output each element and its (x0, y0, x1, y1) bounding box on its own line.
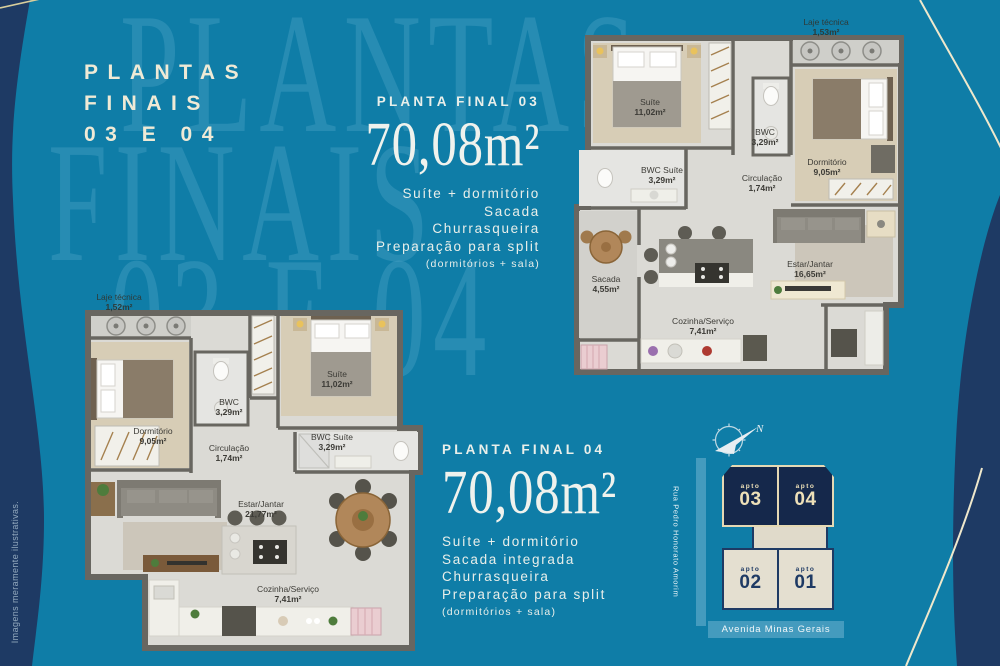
plan03-sofa (773, 209, 865, 243)
plan03-area: 70,08m² (365, 114, 540, 177)
plan03-label-cozinha: Cozinha/Serviço7,41m² (672, 316, 734, 336)
plan03-laje-fans (801, 42, 881, 60)
compass-icon: N (712, 418, 768, 462)
plan04-laje-fans (107, 317, 185, 335)
plan03-label-suite: Suíte11,02m² (634, 97, 665, 117)
plan03-graphic (573, 33, 913, 383)
plan04-graphic (83, 308, 428, 658)
plan04-sofa (117, 480, 221, 518)
plan04-label-estar: Estar/Jantar21,77m² (238, 499, 284, 519)
plan03-laundry-rack (581, 345, 607, 369)
plan03-label-circulacao: Circulação1,74m² (742, 173, 782, 193)
plan03-feature-note: (dormitórios + sala) (240, 258, 540, 270)
plan03-feature-2: Sacada (240, 203, 540, 221)
plan04-dorm-bed (91, 358, 173, 420)
plan03-suite-wardrobe (709, 43, 731, 129)
plan04-laundry-rack (351, 608, 381, 635)
plan03-label-estar: Estar/Jantar16,65m² (787, 259, 833, 279)
plan03-label-sacada: Sacada4,55m² (592, 274, 621, 294)
plan04-label-suite: Suíte11,02m² (321, 369, 352, 389)
plan04-kitchen-island (222, 511, 296, 575)
plan04-area: 70,08m² (442, 462, 617, 525)
keyplan-unit-04: apto 04 (779, 467, 832, 525)
plan04-label-circulacao: Circulação1,74m² (209, 443, 249, 463)
keyplan-unit-03: apto 03 (724, 467, 779, 525)
plan04-label-bwc: BWC3,29m² (216, 397, 243, 417)
plan03-label-dormitorio: Dormitório9,05m² (807, 157, 846, 177)
brochure-page: PLANTAS FINAIS 03 E 04 PLANTAS FINAIS 03… (0, 0, 1000, 666)
street-bar-bottom: Avenida Minas Gerais (708, 621, 844, 638)
svg-text:N: N (755, 423, 764, 435)
plan04-label-cozinha: Cozinha/Serviço7,41m² (257, 584, 319, 604)
plan04-wood-console (143, 555, 219, 572)
plan03-label-laje: Laje técnica1,53m² (803, 17, 848, 37)
plan03-info: PLANTA FINAL 03 70,08m² Suíte + dormitór… (240, 94, 540, 270)
plan04-shelf-plant (91, 482, 115, 516)
plan03-label-bwc-suite: BWC Suíte3,29m² (641, 165, 683, 185)
plan03-tv-console (771, 281, 845, 299)
top-right-cream-curve (920, 0, 1000, 150)
keyplan-unit-02: apto 02 (724, 550, 779, 608)
plan04-suite-wardrobe (252, 316, 274, 394)
street-name-left: Rua Pedro Honorato Amorim (646, 458, 706, 626)
plan04-label-bwc-suite: BWC Suíte3,29m² (311, 432, 353, 452)
page-title-line1: PLANTAS (84, 57, 248, 88)
plan03-feature-3: Churrasqueira (240, 220, 540, 238)
keyplan-lower-units: apto 02 apto 01 (722, 548, 834, 610)
page-title-line2: FINAIS (84, 88, 248, 119)
plan04-floorplan: Laje técnica1,52m² Dormitório9,05m² BWC3… (83, 308, 428, 658)
street-name-bottom: Avenida Minas Gerais (722, 624, 831, 635)
plan03-floorplan: Laje técnica1,53m² Suíte11,02m² BWC3,29m… (573, 33, 913, 383)
plan03-side-table (867, 211, 895, 237)
disclaimer-text: Imagens meramente ilustrativas. (10, 492, 24, 652)
plan03-heading: PLANTA FINAL 03 (240, 94, 540, 109)
keyplan-upper-units: apto 03 apto 04 (722, 465, 834, 527)
plan04-label-dormitorio: Dormitório9,05m² (133, 426, 172, 446)
plan03-feature-4: Preparação para split (240, 238, 540, 256)
page-title-line3: 03 E 04 (84, 119, 248, 150)
keyplan-unit-01: apto 01 (779, 550, 832, 608)
plan03-feature-1: Suíte + dormitório (240, 185, 540, 203)
page-title: PLANTAS FINAIS 03 E 04 (84, 57, 248, 150)
plan03-dorm-bed (813, 77, 893, 141)
right-navy-wave (953, 195, 1000, 666)
plan03-label-bwc: BWC3,29m² (752, 127, 779, 147)
site-key-plan: N Rua Pedro Honorato Amorim apto 03 apto… (690, 418, 868, 658)
plan04-label-laje: Laje técnica1,52m² (96, 292, 141, 312)
street-strip-left: Rua Pedro Honorato Amorim (696, 458, 706, 626)
